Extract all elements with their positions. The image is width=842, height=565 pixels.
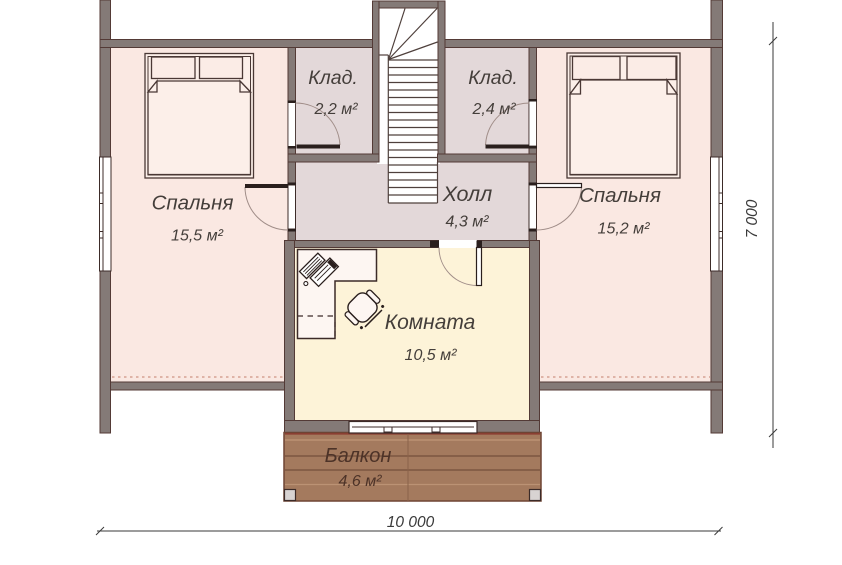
svg-text:10,5 м²: 10,5 м² [405, 347, 458, 364]
svg-text:Клад.: Клад. [468, 67, 518, 89]
svg-text:Балкон: Балкон [325, 445, 392, 467]
svg-text:10 000: 10 000 [387, 514, 435, 531]
svg-text:Клад.: Клад. [308, 67, 358, 89]
svg-text:Спальня: Спальня [152, 192, 234, 215]
svg-text:15,5 м²: 15,5 м² [171, 228, 224, 245]
svg-text:Комната: Комната [385, 311, 476, 334]
svg-text:7 000: 7 000 [744, 199, 761, 238]
svg-text:2,4 м²: 2,4 м² [472, 101, 517, 118]
svg-text:Холл: Холл [442, 182, 493, 206]
svg-text:15,2 м²: 15,2 м² [598, 221, 651, 238]
svg-text:2,2 м²: 2,2 м² [314, 101, 359, 118]
svg-text:Спальня: Спальня [579, 184, 661, 207]
svg-text:4,6 м²: 4,6 м² [339, 473, 383, 490]
svg-text:4,3 м²: 4,3 м² [446, 214, 490, 231]
